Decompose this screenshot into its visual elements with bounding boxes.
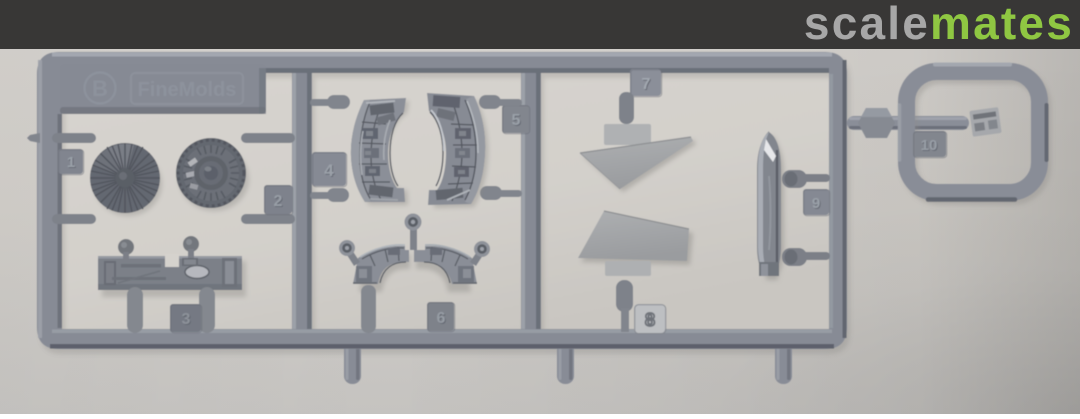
svg-text:FineMolds: FineMolds — [138, 79, 237, 101]
svg-text:9: 9 — [812, 195, 820, 212]
svg-text:1: 1 — [67, 154, 75, 171]
svg-text:7: 7 — [642, 76, 651, 93]
svg-text:5: 5 — [512, 112, 521, 129]
svg-text:B: B — [92, 76, 108, 101]
svg-text:4: 4 — [324, 161, 334, 180]
svg-text:8: 8 — [645, 310, 655, 330]
svg-text:6: 6 — [437, 310, 446, 327]
svg-text:10: 10 — [921, 137, 938, 154]
svg-text:scalemates: scalemates — [804, 0, 1074, 49]
svg-text:3: 3 — [182, 311, 191, 328]
svg-text:2: 2 — [274, 193, 283, 210]
